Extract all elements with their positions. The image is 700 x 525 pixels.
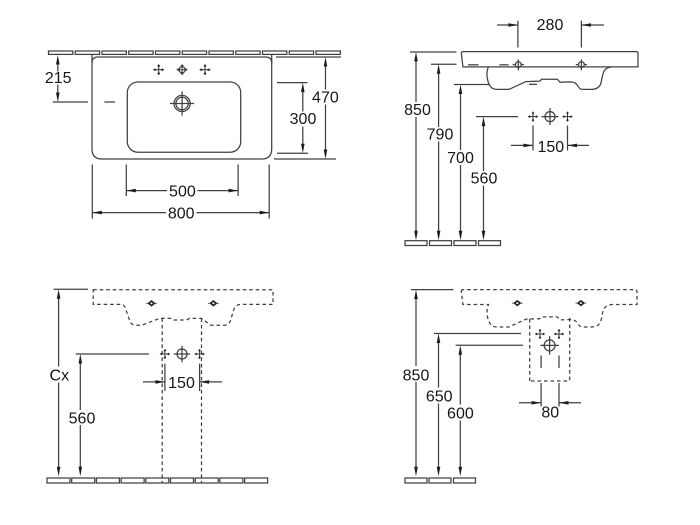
svg-text:600: 600 xyxy=(447,406,474,423)
svg-text:560: 560 xyxy=(471,171,498,188)
svg-text:500: 500 xyxy=(169,184,196,201)
svg-text:300: 300 xyxy=(290,111,317,128)
svg-text:280: 280 xyxy=(537,17,564,34)
svg-text:150: 150 xyxy=(537,139,564,156)
svg-text:Cx: Cx xyxy=(50,368,70,385)
svg-text:215: 215 xyxy=(45,70,72,87)
svg-text:150: 150 xyxy=(168,375,195,392)
svg-text:700: 700 xyxy=(447,150,474,167)
svg-text:650: 650 xyxy=(426,389,453,406)
svg-text:80: 80 xyxy=(541,405,559,422)
svg-text:790: 790 xyxy=(427,127,454,144)
svg-text:470: 470 xyxy=(312,89,339,106)
svg-text:560: 560 xyxy=(69,410,96,427)
svg-text:850: 850 xyxy=(404,102,431,119)
svg-text:850: 850 xyxy=(403,367,430,384)
svg-text:800: 800 xyxy=(168,205,195,222)
